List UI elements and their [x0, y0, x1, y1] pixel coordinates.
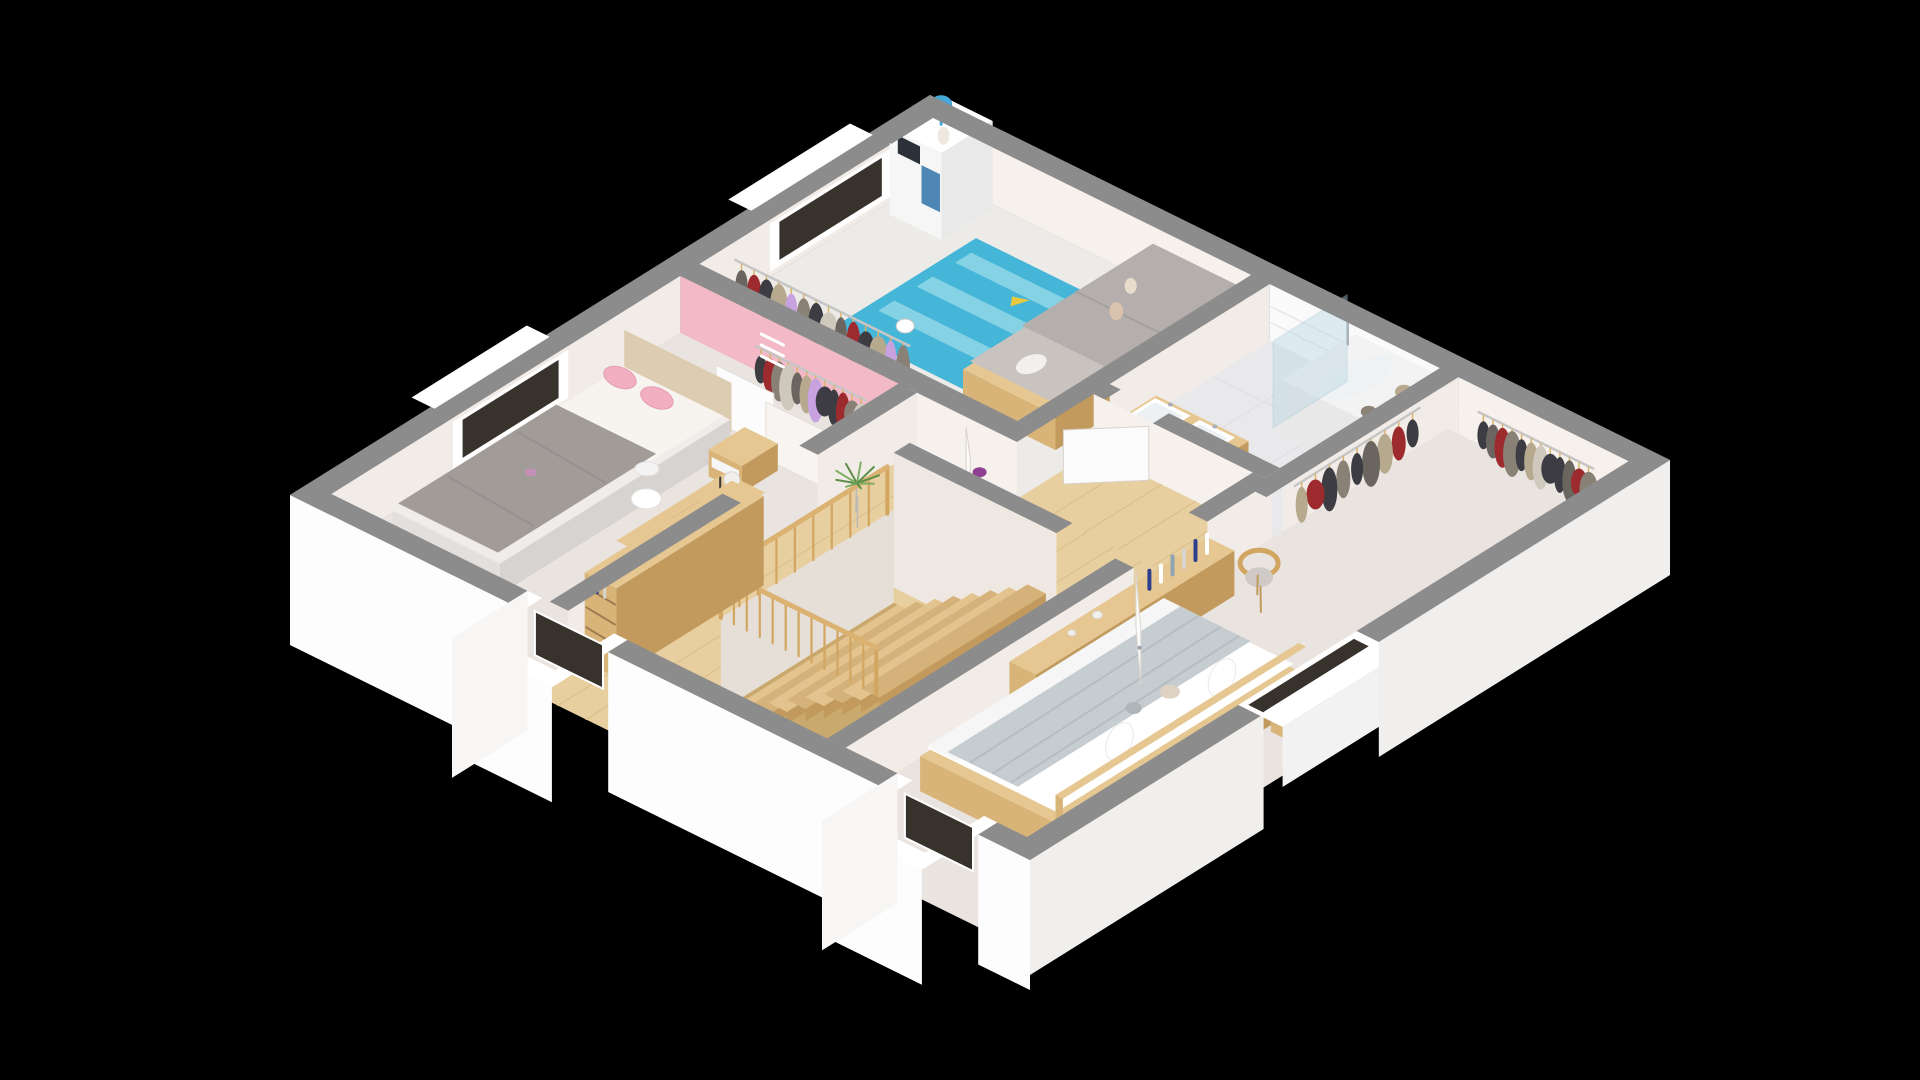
floor-plan-3d-render [0, 0, 1920, 1080]
dressing-rack-side-garment [1351, 453, 1363, 485]
console-deco [1068, 630, 1076, 636]
dressing-rack-side-garment [1407, 419, 1419, 447]
kids-bed-bunny [1125, 278, 1137, 294]
dressing-rack-side-garment [1362, 441, 1380, 487]
sink-tap [1212, 424, 1217, 428]
kids-rug-dog-toy [896, 319, 914, 333]
dressing-rack-side-garment [1392, 427, 1406, 461]
dressing-rack-side-garment [1296, 487, 1308, 523]
kids-bunny-plush [938, 127, 950, 145]
plant-stand-leg [856, 490, 857, 512]
desk-chair-seat [631, 489, 661, 509]
dressing-rack-side-garment [1307, 480, 1325, 510]
bathroom-door-leaf [1063, 426, 1148, 484]
master-pillow-accent [1160, 685, 1180, 699]
headphones-on-bed [525, 468, 537, 476]
kids-bed-bunny [1109, 302, 1123, 320]
desk-chair-back [635, 462, 659, 476]
floor-plan-page [0, 0, 1920, 1080]
sink-tap [1168, 403, 1173, 407]
console-deco [1092, 611, 1102, 619]
master-door-handle [1138, 646, 1142, 650]
master-pillow-accent [1126, 702, 1142, 714]
exterior-front-wall [978, 835, 1030, 991]
master-chair-seat [1245, 567, 1273, 587]
dressing-rack-side-garment [1336, 460, 1350, 498]
